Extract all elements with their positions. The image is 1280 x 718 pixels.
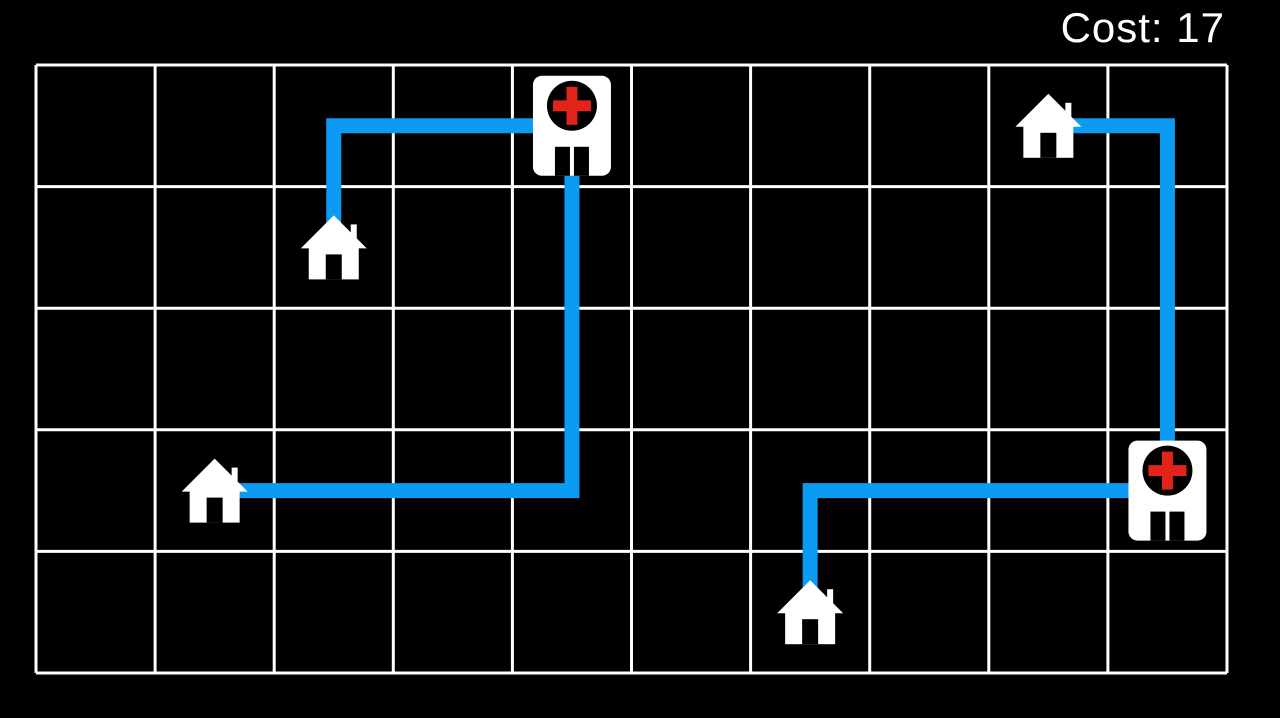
hospital-cross-icon: [566, 87, 577, 125]
game-board[interactable]: [0, 0, 1280, 718]
hospital-icon[interactable]: [533, 76, 611, 176]
house-icon[interactable]: [301, 215, 367, 279]
route-paths: [238, 126, 1168, 592]
house-icon[interactable]: [182, 459, 248, 523]
house-door: [1040, 133, 1056, 158]
game-stage: Cost: 17: [0, 0, 1280, 718]
cost-label: Cost: 17: [1061, 4, 1225, 52]
hospital-door-right: [1169, 512, 1184, 541]
house-door: [802, 619, 818, 644]
house-door: [326, 254, 342, 279]
hospital-icon[interactable]: [1128, 441, 1206, 541]
house-icon[interactable]: [1015, 94, 1081, 158]
house-door: [207, 498, 223, 523]
hospital-door-left: [555, 147, 570, 176]
hospital-door-left: [1150, 512, 1165, 541]
hospital-door-right: [574, 147, 589, 176]
hospital-cross-icon: [1162, 452, 1173, 490]
house-icon[interactable]: [777, 580, 843, 644]
